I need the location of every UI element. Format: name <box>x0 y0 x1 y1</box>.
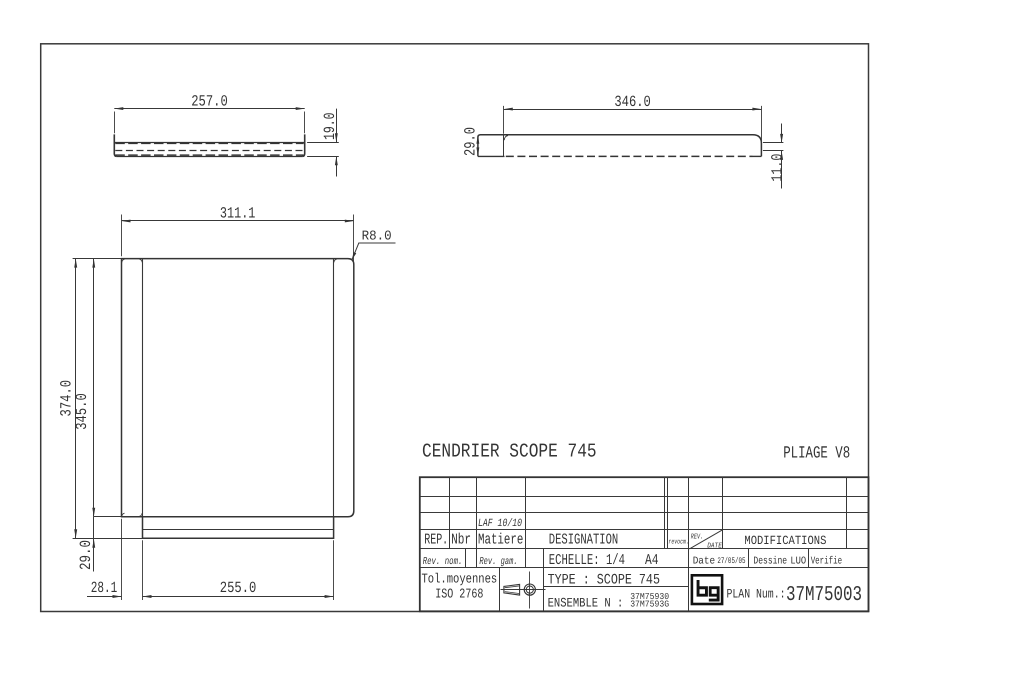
svg-text:Matiere: Matiere <box>478 532 523 549</box>
svg-text:11.0: 11.0 <box>769 154 787 182</box>
svg-text:R8.0: R8.0 <box>362 230 392 245</box>
svg-text:A4: A4 <box>645 552 659 569</box>
svg-text:19.0: 19.0 <box>321 112 339 140</box>
svg-text:REP.: REP. <box>424 532 448 549</box>
svg-text:27/05/05: 27/05/05 <box>717 556 745 566</box>
svg-text:Nbr: Nbr <box>451 532 471 549</box>
svg-text:255.0: 255.0 <box>220 579 257 597</box>
svg-text:37M7593G: 37M7593G <box>630 600 669 610</box>
svg-text:Rev. gam.: Rev. gam. <box>479 556 517 568</box>
svg-text:257.0: 257.0 <box>191 93 228 111</box>
svg-text:DESIGNATION: DESIGNATION <box>549 532 618 549</box>
svg-text:Dessine: Dessine <box>753 556 787 568</box>
svg-text:LAF 10/10: LAF 10/10 <box>478 518 522 530</box>
svg-text:ENSEMBLE N :: ENSEMBLE N : <box>548 595 624 610</box>
svg-text:28.1: 28.1 <box>91 579 118 597</box>
svg-text:29.0: 29.0 <box>462 127 480 156</box>
svg-text:DATE: DATE <box>707 542 722 550</box>
svg-text:TYPE : SCOPE 745: TYPE : SCOPE 745 <box>548 572 660 588</box>
svg-text:ECHELLE: 1/4: ECHELLE: 1/4 <box>549 552 625 569</box>
svg-text:Date: Date <box>693 556 716 568</box>
svg-text:ISO 2768: ISO 2768 <box>435 587 483 602</box>
svg-text:345.0: 345.0 <box>73 393 91 430</box>
svg-text:PLAN Num.:: PLAN Num.: <box>727 587 786 602</box>
svg-text:29.0: 29.0 <box>77 540 95 570</box>
svg-text:Rev. nom.: Rev. nom. <box>423 556 463 568</box>
svg-text:311.1: 311.1 <box>220 205 256 223</box>
svg-text:Tol.moyennes: Tol.moyennes <box>422 573 498 588</box>
svg-text:CENDRIER SCOPE 745: CENDRIER SCOPE 745 <box>422 440 597 462</box>
svg-text:PLIAGE V8: PLIAGE V8 <box>783 445 850 464</box>
svg-text:REV.: REV. <box>691 534 703 542</box>
svg-text:MODIFICATIONS: MODIFICATIONS <box>744 534 826 548</box>
svg-text:Verifie: Verifie <box>811 556 842 568</box>
svg-text:37M75003: 37M75003 <box>786 584 862 607</box>
svg-text:LUO: LUO <box>790 556 806 568</box>
svg-text:346.0: 346.0 <box>614 93 651 111</box>
svg-text:revocm.: revocm. <box>668 538 689 546</box>
